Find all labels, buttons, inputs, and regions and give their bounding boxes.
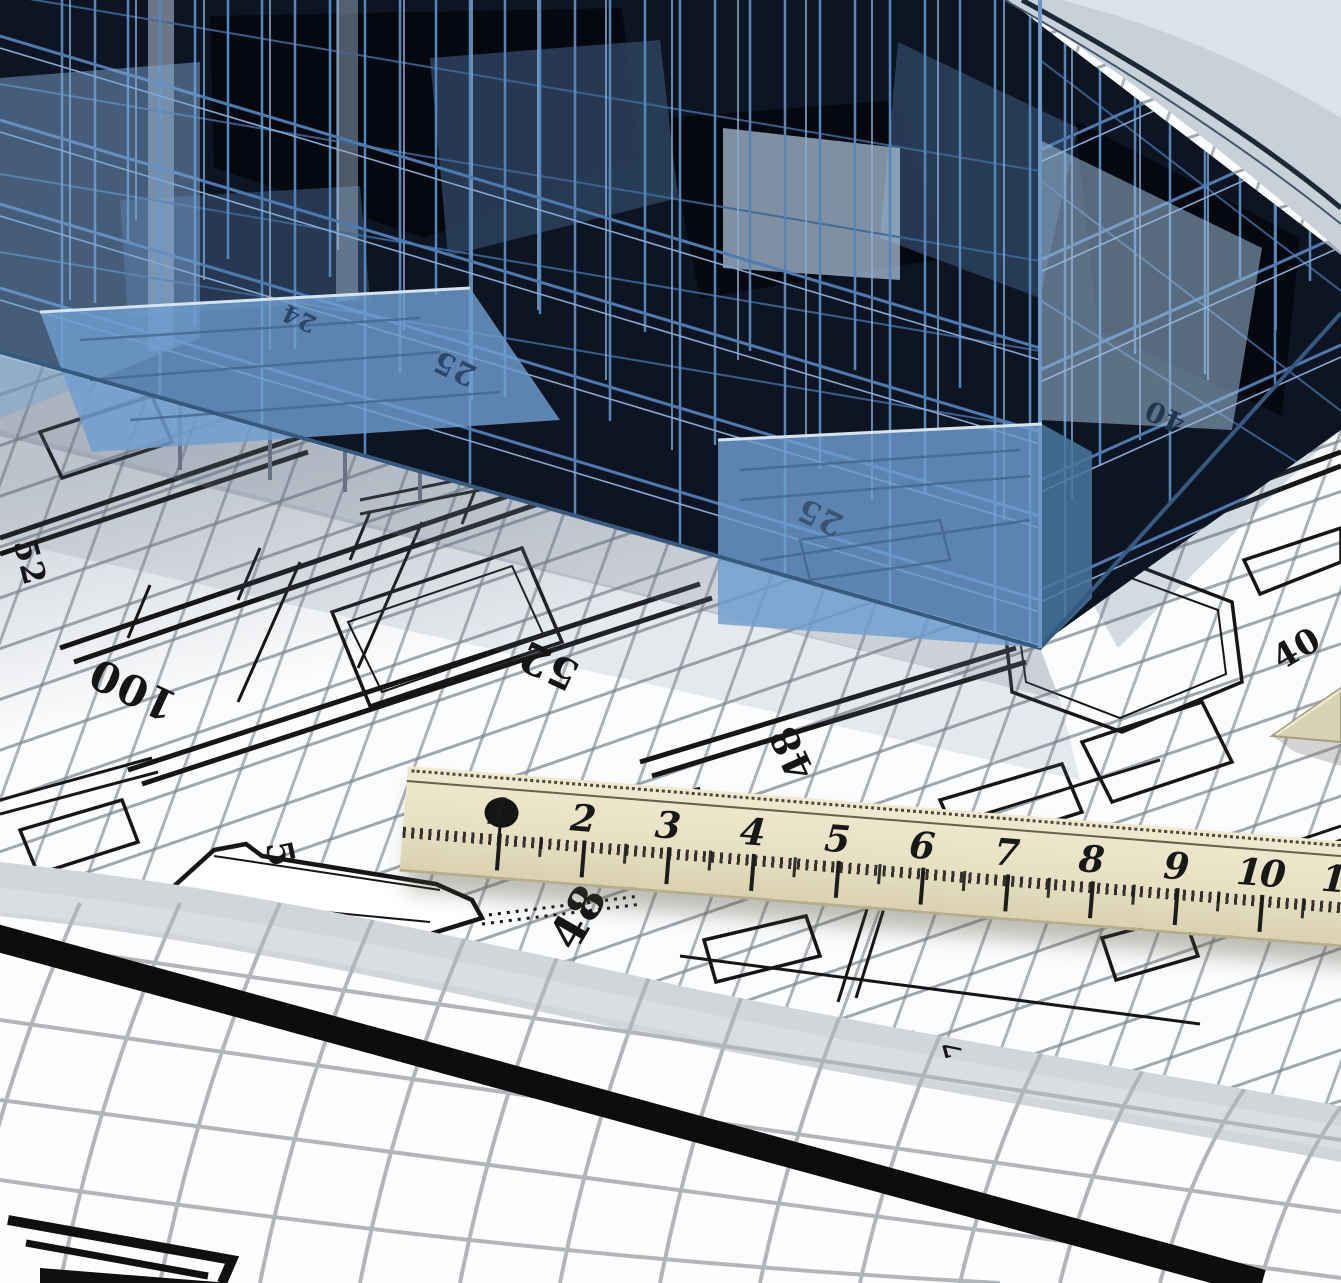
ruler-number: 5 xyxy=(809,815,864,863)
wireframe-floors-light xyxy=(0,27,1341,612)
sky-swoosh xyxy=(1005,0,1341,252)
ruler-major-tick xyxy=(580,840,587,877)
wireframe-building xyxy=(0,0,1341,1283)
plan-drawing-layer xyxy=(0,0,1341,1283)
building-window-voids xyxy=(120,8,1300,416)
ruler-half-tick xyxy=(1301,898,1306,918)
ruler-half-tick xyxy=(1216,891,1221,911)
ruler-hole xyxy=(483,796,519,829)
ruler-major-tick xyxy=(749,854,756,891)
dimension-label: 40 xyxy=(1267,622,1327,676)
wooden-ruler: 1 2 3 4 5 6 7 8 9 10 11 xyxy=(399,766,1341,949)
building-dark-mass xyxy=(0,0,1341,645)
ruler-major-tick xyxy=(834,861,841,898)
dimension-label: 25 xyxy=(792,493,848,542)
dimension-label: 24 xyxy=(278,300,320,337)
wireframe-floors xyxy=(0,15,1341,600)
ruler-number: 10 xyxy=(1233,849,1288,897)
ruler-half-tick xyxy=(877,864,882,884)
plan-walls-thick xyxy=(0,437,1341,784)
roll-grid xyxy=(0,903,1341,1283)
blueprint-grid-vertical xyxy=(0,0,1341,1283)
ruler-number: 6 xyxy=(894,821,949,869)
dimension-label: 25 xyxy=(429,344,481,390)
ruler-number: 2 xyxy=(555,794,610,842)
ruler-half-tick xyxy=(962,871,967,891)
plan-walls-medium xyxy=(0,430,1341,1024)
roll-curl-highlight xyxy=(0,888,1341,1150)
ruler-major-tick xyxy=(1003,874,1010,911)
roll-paper xyxy=(0,862,1341,1283)
roll-corner-frame xyxy=(8,1220,232,1283)
roll-corner-fill xyxy=(40,1268,230,1283)
ruler-major-tick xyxy=(1173,888,1180,925)
glass-slabs xyxy=(0,62,1262,648)
ruler-number: 7 xyxy=(978,828,1033,876)
ruler-half-tick xyxy=(538,837,543,857)
leader-dots xyxy=(480,896,642,924)
rolled-sheet xyxy=(0,0,1341,1283)
dimension-label: 52 xyxy=(513,633,586,697)
ruler-number: 9 xyxy=(1148,842,1203,890)
wireframe-verticals xyxy=(62,0,1338,646)
ruler-half-tick xyxy=(792,857,797,877)
glass-columns xyxy=(148,0,900,352)
building-edges xyxy=(0,0,1341,648)
ruler-major-tick xyxy=(495,833,502,870)
plan-rooms-inner xyxy=(348,566,1226,718)
ruler-hole-stem xyxy=(497,826,501,843)
blueprint-grid-horizontal xyxy=(0,0,1341,1283)
ruler-number: 4 xyxy=(724,808,779,856)
ruler-half-tick xyxy=(1047,878,1052,898)
building-posts xyxy=(180,395,700,512)
dimension-label: 52 xyxy=(9,535,52,588)
ruler-number: 1 xyxy=(470,787,525,835)
wireframe-verticals-light xyxy=(70,0,1276,520)
roll-curl-shade xyxy=(0,862,1341,1162)
ruler-half-tick xyxy=(708,850,713,870)
dimension-label: 5 xyxy=(260,838,301,871)
plan-rooms xyxy=(20,396,1341,982)
ruler-number: 8 xyxy=(1063,835,1118,883)
ruler-major-tick xyxy=(1257,895,1264,932)
dimension-label: 40 xyxy=(1141,395,1190,438)
blueprint-scene: 24 25 25 40 52 100 52 48 40 5 48 7 1 2 3… xyxy=(0,0,1341,1283)
dimension-label: 48 xyxy=(542,877,615,957)
ruler-number: 3 xyxy=(639,801,694,849)
wireframe-beams-depth xyxy=(0,0,1341,490)
dimension-label: 48 xyxy=(763,720,821,786)
ruler-major-tick xyxy=(919,868,926,905)
ruler-half-tick xyxy=(623,844,628,864)
building-shadow-gradient xyxy=(0,330,1341,760)
ruler-edge-line xyxy=(407,780,1341,859)
ruler-major-tick xyxy=(1088,881,1095,918)
ruler-minor-ticks xyxy=(402,827,1341,915)
ruler-dotted-edge xyxy=(412,769,1341,849)
ruler-half-tick xyxy=(1131,885,1136,905)
ruler-number: 11 xyxy=(1317,855,1341,903)
drafting-tool xyxy=(172,844,642,934)
annotation-arrow xyxy=(912,1032,946,1050)
ruler-major-tick xyxy=(664,847,671,884)
annotation-arrowhead xyxy=(928,1035,950,1052)
set-square-corner xyxy=(1272,688,1341,766)
black-band xyxy=(0,936,1262,1283)
dimension-label: 100 xyxy=(83,651,183,727)
slab-plan-lines xyxy=(80,318,1030,580)
cast-shadows xyxy=(0,236,1341,780)
dimension-label: 7 xyxy=(939,1037,967,1060)
